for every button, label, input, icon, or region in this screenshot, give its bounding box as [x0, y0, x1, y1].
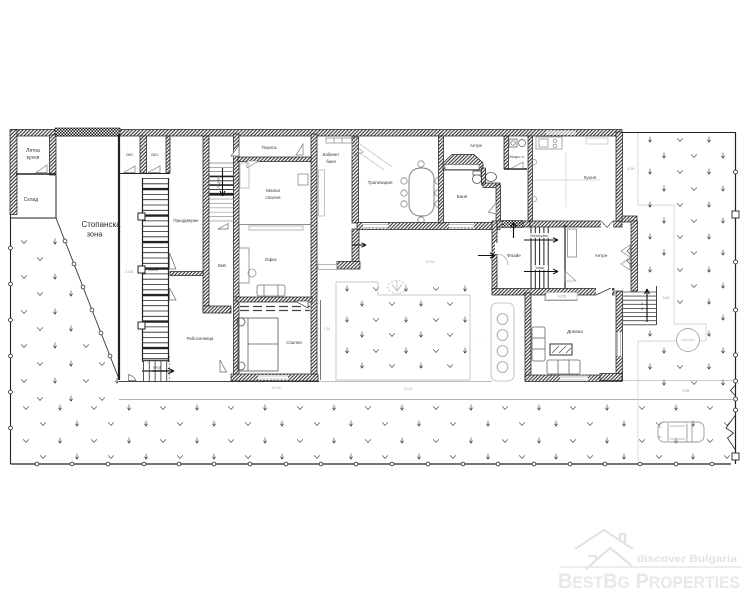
svg-text:скл.: скл. [126, 152, 134, 157]
svg-text:зона: зона [87, 230, 104, 239]
svg-text:19.60: 19.60 [426, 260, 435, 264]
svg-text:Малка: Малка [266, 188, 280, 193]
svg-text:Мокро п.: Мокро п. [509, 155, 524, 159]
svg-text:12.40: 12.40 [404, 387, 413, 391]
svg-text:Антре: Антре [595, 253, 608, 258]
svg-text:етаж: етаж [536, 266, 544, 270]
svg-text:3: 3 [641, 302, 643, 306]
svg-text:Работилница: Работилница [187, 336, 215, 341]
svg-text:20.10: 20.10 [272, 386, 281, 390]
svg-text:14.55: 14.55 [557, 295, 566, 299]
svg-text:ВиК: ВиК [218, 263, 226, 268]
svg-text:4.50: 4.50 [628, 167, 635, 171]
svg-text:Стопанска: Стопанска [81, 220, 121, 229]
svg-text:скл.: скл. [151, 152, 159, 157]
svg-text:Кухня: Кухня [584, 175, 597, 180]
svg-text:9.85: 9.85 [683, 389, 690, 393]
svg-text:Дневна: Дневна [567, 329, 583, 334]
svg-text:Лятна: Лятна [26, 148, 40, 154]
svg-text:4: 4 [641, 307, 643, 311]
svg-text:Трапезария: Трапезария [368, 180, 393, 185]
svg-text:2.08: 2.08 [125, 269, 134, 274]
svg-text:Фоайе: Фоайе [507, 252, 521, 258]
svg-text:Преддверие: Преддверие [173, 218, 199, 223]
svg-text:Офис: Офис [265, 257, 278, 262]
svg-text:кухня: кухня [27, 155, 40, 161]
svg-text:discover Bulgaria: discover Bulgaria [637, 553, 737, 565]
svg-text:На втория: На втория [531, 234, 548, 238]
svg-text:Склад: Склад [24, 197, 39, 203]
svg-text:BESTBG PROPERTIES: BESTBG PROPERTIES [558, 570, 740, 593]
svg-text:Баня: Баня [457, 194, 468, 199]
svg-text:Кабинет: Кабинет [323, 152, 340, 157]
svg-text:надолу: надолу [217, 176, 221, 188]
svg-text:3.60: 3.60 [663, 296, 670, 300]
svg-text:баня: баня [326, 159, 336, 164]
svg-text:Спалня: Спалня [286, 340, 302, 345]
svg-text:1.50: 1.50 [324, 327, 331, 331]
svg-text:Тераса: Тераса [261, 145, 277, 150]
svg-text:спалня: спалня [265, 195, 281, 200]
svg-text:вход: вход [153, 366, 162, 370]
svg-text:Антре: Антре [470, 143, 483, 148]
